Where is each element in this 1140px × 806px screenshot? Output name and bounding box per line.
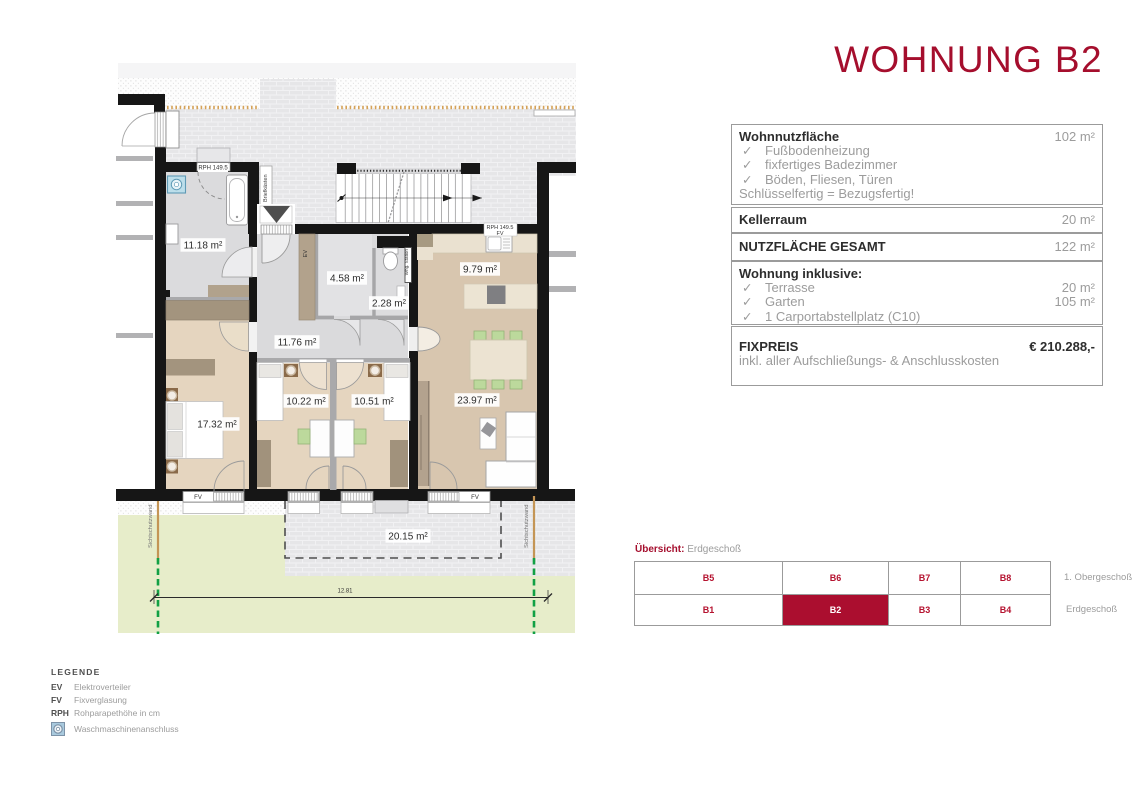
svg-text:FV: FV [496, 231, 503, 237]
svg-text:11.18 m²: 11.18 m² [184, 241, 223, 252]
svg-text:Sichtschutzwand: Sichtschutzwand [524, 505, 530, 549]
svg-text:23.97 m²: 23.97 m² [457, 396, 497, 407]
svg-text:4.58 m²: 4.58 m² [330, 274, 365, 285]
svg-text:10.51 m²: 10.51 m² [354, 397, 394, 408]
svg-text:12.81: 12.81 [337, 589, 353, 595]
svg-text:EV: EV [303, 250, 309, 258]
svg-text:Briefkästen: Briefkästen [263, 174, 269, 202]
svg-text:2.28 m²: 2.28 m² [372, 299, 407, 310]
svg-text:20.15 m²: 20.15 m² [388, 532, 428, 543]
svg-text:11.76 m²: 11.76 m² [278, 338, 317, 349]
svg-text:RPH 149.5: RPH 149.5 [198, 166, 228, 172]
svg-text:17.32 m²: 17.32 m² [197, 420, 237, 431]
svg-text:FV: FV [194, 495, 202, 501]
svg-text:Whg. Station: Whg. Station [404, 249, 409, 276]
svg-text:Sichtschutzwand: Sichtschutzwand [148, 505, 154, 549]
svg-text:10.22 m²: 10.22 m² [286, 397, 326, 408]
svg-text:9.79 m²: 9.79 m² [463, 265, 498, 276]
svg-text:FV: FV [471, 495, 479, 501]
